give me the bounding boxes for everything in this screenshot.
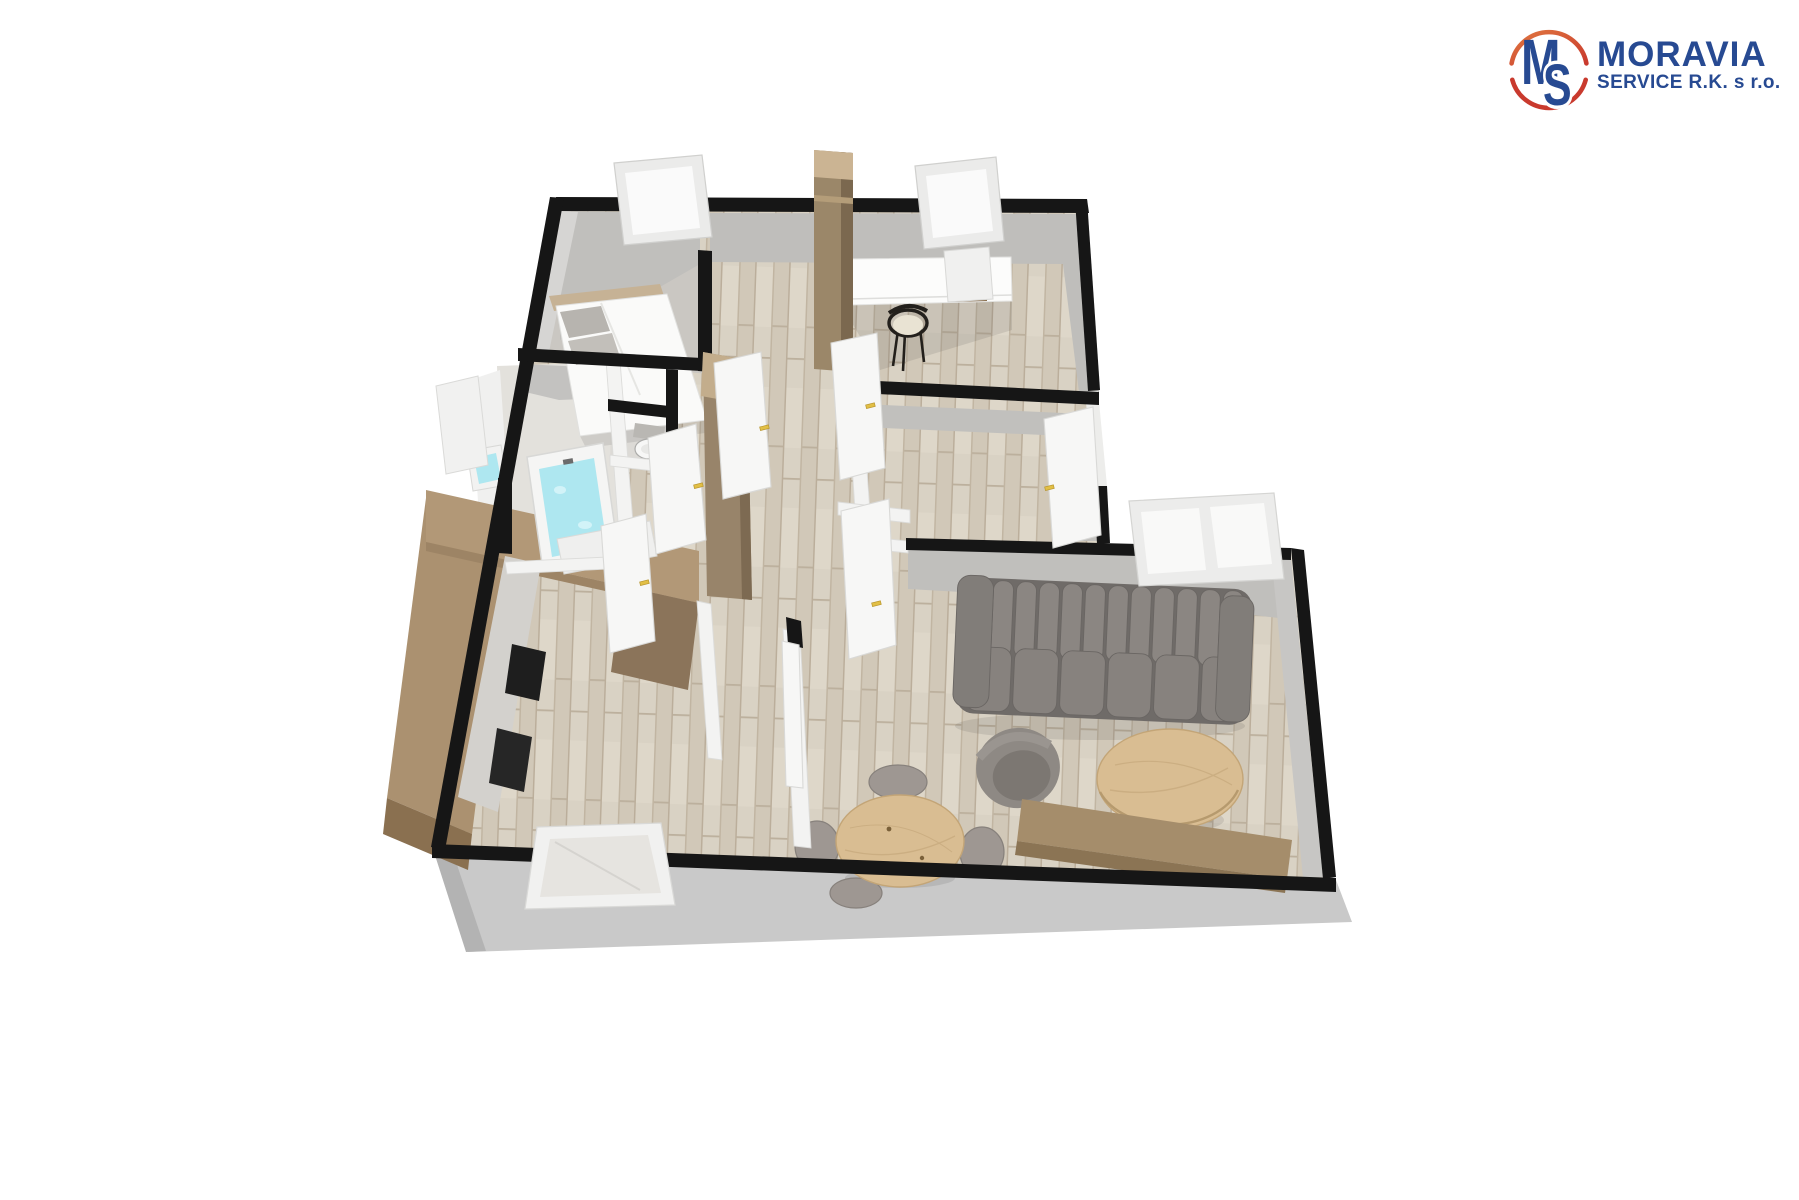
window-bedroom [614,155,712,245]
logo: M S MORAVIA SERVICE R.K. s r.o. [1512,26,1781,117]
kitchen-appliance-oven [505,644,546,701]
door-panel [782,641,803,788]
svg-text:S: S [1543,53,1572,118]
floor-plan-canvas: M S MORAVIA SERVICE R.K. s r.o. [0,0,1799,1200]
sofa [952,575,1255,726]
logo-subtitle: SERVICE R.K. s r.o. [1597,72,1781,93]
door-panel [831,333,885,480]
logo-monogram-s: S [1543,53,1572,118]
logo-name: MORAVIA [1597,35,1767,74]
chimney-column [814,150,853,372]
door-panel [648,424,706,554]
window-kitchen [525,823,675,909]
window-living-double [1129,493,1284,586]
door-panel [841,499,896,659]
door-panel [714,352,771,499]
building [383,150,1352,952]
page: M S MORAVIA SERVICE R.K. s r.o. [0,0,1799,1200]
door-panel [1044,407,1101,548]
